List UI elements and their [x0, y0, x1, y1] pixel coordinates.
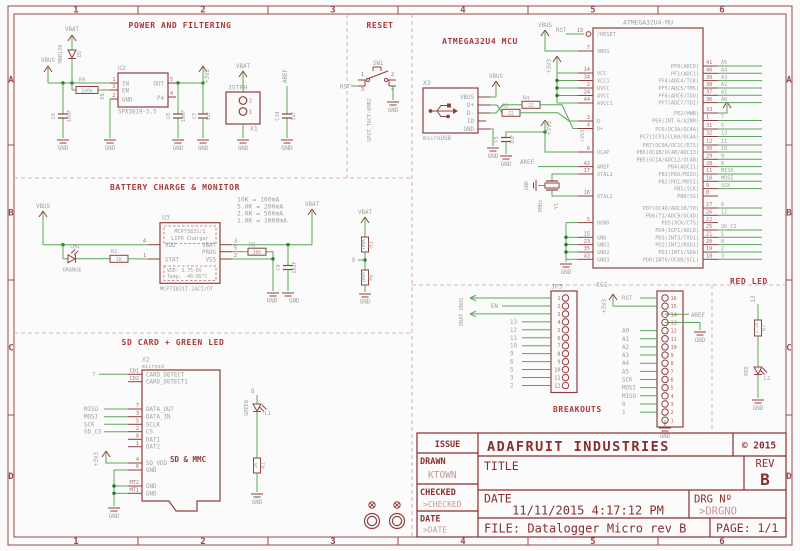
net-label: MISO: [84, 407, 98, 413]
mcu-pin-number: 4: [587, 123, 590, 129]
cap-name: C14: [275, 111, 281, 120]
resistor-value: 100k: [81, 88, 93, 94]
net-label: A1: [622, 337, 629, 343]
gnd-label: GND: [109, 514, 120, 520]
mcu-pin-name: PD0(INT0/OC0B/SCL): [643, 257, 699, 263]
sd-pin-name: DATA_OUT: [146, 407, 174, 413]
header-pin-number: 7: [671, 369, 674, 375]
led-icon: [754, 367, 767, 375]
frame-row-label: D: [8, 472, 14, 482]
frame-col-label: 3: [330, 537, 335, 547]
net-label: A0: [622, 329, 629, 335]
connector-pad-icon: [239, 108, 247, 116]
mounting-hole-icon: [390, 514, 405, 529]
header-pin-number: 7: [557, 344, 560, 350]
net-label: A2: [721, 82, 727, 88]
header-pad-icon: [662, 393, 668, 399]
net-label: MOSI: [721, 176, 734, 182]
header-pad-icon: [662, 295, 668, 301]
header-pad-icon: [562, 319, 568, 325]
mcu-pin-name: D-: [597, 119, 603, 125]
mcu-pin-name: PC7(ICP3/CLK0/OC4A): [640, 135, 699, 141]
net-label: 0: [622, 402, 626, 408]
header-pin-number: 2: [671, 410, 674, 416]
net-label: 11: [721, 139, 727, 145]
net-label-en: EN: [100, 93, 106, 99]
mcu-pin-name: PF5(ADC5/TMS): [658, 86, 699, 92]
diode-name: D5: [77, 51, 83, 57]
net-label: 8: [251, 389, 255, 395]
header-pin-number: 12: [554, 383, 560, 389]
net-label: 10: [510, 344, 517, 350]
mcu-pin-number: 19: [706, 246, 712, 252]
resistor-value: 2.2K: [754, 322, 760, 334]
net-label: A1: [721, 90, 727, 96]
mcu-pin-name: PD1(INT1/SDA): [658, 250, 699, 256]
led-name: L1: [265, 411, 271, 417]
mcu-pin-name: XTAL1: [597, 172, 613, 178]
net-label-vbat: VBAT: [65, 27, 79, 33]
mcu-pin-number: 20: [706, 239, 712, 245]
resistor-value: 100K: [361, 272, 367, 284]
header-pin-number: 12: [671, 329, 677, 335]
header-pin-number: 5: [557, 328, 560, 334]
frame-col-label: 1: [73, 6, 78, 16]
diode-value: MBR120: [58, 45, 64, 64]
mcu-pin-name: PF0(ADC0): [671, 64, 699, 70]
date-value: >DATE: [423, 526, 447, 535]
led-icon: [68, 250, 78, 263]
header-pad-icon: [662, 368, 668, 374]
sd-pin-name: DATA_IN: [146, 415, 171, 421]
cap-name: C5: [494, 136, 500, 142]
mcu-pin-name: XTAL2: [597, 194, 613, 200]
section-title: POWER AND FILTERING: [129, 21, 232, 30]
gnd-icon: [387, 102, 399, 105]
mcu-pin-name: VCC1: [597, 79, 610, 85]
mcu-pin-number: 5: [587, 217, 590, 223]
mcu-pin-name: AVCC: [597, 94, 610, 100]
mounting-hole-icon: [365, 514, 380, 529]
mcu-pin-number: 21: [706, 232, 712, 238]
frame-row-label: A: [786, 76, 792, 86]
sd-pin-name: GND: [146, 468, 157, 474]
frame-col-label: 2: [200, 6, 205, 16]
mcu-pin-number: 24: [584, 90, 590, 96]
header-name: IC1: [596, 281, 608, 289]
mcu-pin-name: PB2(PDI/MOSI): [658, 179, 699, 185]
cap-name: C9: [276, 264, 282, 270]
net-label: 8: [721, 161, 724, 167]
pin-name: STAT: [165, 257, 179, 263]
mcu-pin-name: PB7(OC0A/OC1C/RTS): [643, 143, 699, 149]
mcu-pin-number: 17: [584, 168, 590, 174]
mcu-pin-name: PF4(ADC4/TCK): [658, 79, 699, 85]
mcu-pin-number: 34: [584, 75, 590, 81]
switch-value: SPST_TACT-KMR2: [367, 98, 373, 142]
net-label: MOSI: [84, 415, 98, 421]
crystal-icon: [545, 181, 559, 190]
sd-pin-name: SD_VDD: [146, 461, 167, 467]
gnd-label: GND: [524, 181, 530, 190]
pin-name: VBAT: [202, 243, 216, 249]
frame-col-label: 2: [200, 537, 205, 547]
header-pad-icon: [662, 336, 668, 342]
mcu-pin-name: GND: [597, 235, 606, 241]
net-label-vbat: VBAT: [305, 202, 319, 208]
mcu-pin-name: PF7(ADC7/TDI): [658, 101, 699, 107]
sd-pin-number: CD2: [130, 376, 139, 382]
resistor-value: 1K: [253, 463, 259, 469]
ic-label: LIPO Charger: [171, 236, 208, 242]
diode-icon: [68, 50, 76, 59]
mcu-pin-name: PD7(OC4D/ADC10/T0): [643, 206, 699, 212]
mcu-pin-number: 42: [584, 161, 590, 167]
header-pad-icon: [562, 335, 568, 341]
net-label: 9: [510, 352, 514, 358]
header-pin-number: 16: [671, 296, 677, 302]
sd-pin-number: 6: [136, 464, 139, 470]
gnd-label: GND: [561, 270, 572, 276]
net-label: 12: [721, 210, 727, 216]
mcu-pin-number: 33: [706, 107, 712, 113]
sd-pin-number: 3: [136, 411, 139, 417]
net-label-3v3: +3V3: [580, 130, 586, 143]
frame-col-label: 4: [460, 6, 466, 16]
section-title: BREAKOUTS: [553, 405, 602, 414]
cap-value: 10uF: [67, 110, 73, 123]
pin-name: VBUS: [460, 95, 474, 101]
gnd-icon: [108, 508, 120, 511]
checked-value: >CHECKED: [423, 500, 462, 509]
gnd-label: GND: [267, 299, 278, 305]
header-pin-number: 8: [671, 361, 674, 367]
net-label-aref: AREF: [691, 313, 705, 319]
net-label: 9: [352, 258, 356, 264]
rev-label: REV: [756, 458, 776, 470]
sd-pin-name: CARD_DETECT1: [146, 380, 188, 386]
mcu-pin-number: 14: [584, 67, 590, 73]
header-pad-icon: [562, 382, 568, 388]
date2-value: 11/11/2015 4:17:12 PM: [512, 504, 664, 518]
cap-value: 1uF: [291, 111, 297, 120]
net-label: A3: [721, 75, 727, 81]
pin-number: 3: [234, 239, 237, 245]
header-pin-number: 6: [557, 336, 560, 342]
net-label: MISO: [721, 168, 734, 174]
header-pin-number: 13: [671, 320, 677, 326]
connector-name: X2: [142, 356, 150, 364]
mcu-pin-number: 29: [706, 154, 712, 160]
gnd-icon: [281, 140, 293, 143]
header-pad-icon: [562, 366, 568, 372]
drg-label: DRG Nº: [694, 494, 732, 506]
header-pad-icon: [662, 384, 668, 390]
net-label: 0: [721, 239, 724, 245]
gnd-icon: [172, 140, 184, 143]
pin-number: 3: [112, 84, 115, 90]
switch-name: SW1: [373, 61, 384, 67]
mcu-pin-number: 16: [584, 190, 590, 196]
frame-col-label: 5: [590, 537, 595, 547]
frame-col-label: 5: [590, 6, 595, 16]
header-pin-number: 2: [557, 304, 560, 310]
net-label: 9: [721, 154, 724, 160]
net-label-aref: AREF: [283, 69, 289, 83]
pin-name: VSS: [206, 258, 217, 264]
gnd-label: GND: [58, 146, 69, 152]
mcu-pin-number: 15: [584, 232, 590, 238]
mcu-pin-name: AVCC1: [597, 101, 613, 107]
copyright: © 2015: [742, 441, 777, 452]
gnd-label: GND: [695, 338, 706, 344]
net-label: 13: [721, 131, 727, 137]
header-pin-number: 1: [671, 418, 674, 424]
net-label: VBAT: [459, 314, 465, 327]
net-label: A4: [721, 68, 727, 74]
pin-name: OUT: [154, 81, 165, 87]
net-label: 13: [751, 295, 757, 302]
net-label-vbat: VBAT: [236, 64, 250, 70]
mcu-pin-number: 3: [587, 115, 590, 121]
net-label: 7: [721, 115, 724, 121]
pin-name: ID: [467, 119, 474, 125]
header-pad-icon: [562, 303, 568, 309]
mcu-pin-number: 36: [706, 97, 712, 103]
mcu-pin-name: PB1(SCK): [674, 187, 699, 193]
net-label: SCK: [622, 378, 633, 384]
sd-pin-number: CD1: [130, 369, 139, 375]
gnd-label: GND: [289, 299, 300, 305]
net-label: 6: [721, 202, 724, 208]
mcu-pin-name: PF6(ADC6/TDO): [658, 93, 699, 99]
led-color-label: RED: [744, 366, 750, 375]
gnd-icon: [500, 156, 512, 159]
header-name: JP3: [551, 283, 563, 291]
sd-pin-name: SCLK: [146, 422, 160, 428]
resistor-value: 1K: [116, 257, 122, 263]
section-title: SD CARD + GREEN LED: [122, 338, 225, 347]
fiducial-icon: [369, 502, 375, 508]
mcu-pin-name: PB3(PDO/MISO): [658, 172, 699, 178]
pin-name: PROG: [202, 250, 216, 256]
header-pin-number: 14: [671, 312, 677, 318]
net-label: SCK: [721, 183, 731, 189]
sd-pin-name: CS: [146, 430, 153, 436]
section-title: ATMEGA32U4 MCU: [442, 37, 518, 46]
net-label: SCK: [84, 422, 95, 428]
mcu-pin-name: UCAP: [597, 150, 610, 156]
net-label-vbus: VBUS: [538, 23, 552, 29]
frame-row-label: B: [8, 209, 14, 219]
section-reset: RESET SW1 1 2 3 4 RST GND SPST_TACT-KMR2: [340, 21, 399, 142]
header-pad-icon: [662, 376, 668, 382]
header-pin-number: 4: [557, 320, 560, 326]
gnd-icon: [752, 400, 764, 403]
net-label: 10: [721, 146, 727, 152]
mcu-pin-name: UVCC: [597, 86, 610, 92]
mcu-pin-number: 28: [706, 161, 712, 167]
pin-name: GND: [464, 127, 475, 133]
net-label-3v3: +3V3: [205, 69, 211, 83]
gnd-label: GND: [488, 154, 499, 160]
net-label-3v3: +3V3: [602, 299, 608, 313]
net-label: A5: [622, 369, 629, 375]
header-pad-icon: [662, 303, 668, 309]
gnd-icon: [57, 140, 69, 143]
frame-col-label: 6: [719, 6, 724, 16]
component-name: U2: [118, 64, 126, 72]
header-pin-number: 3: [557, 312, 560, 318]
net-label: A2: [622, 345, 629, 351]
sd-pin-name: DAT1: [146, 437, 160, 443]
mcu-pin-number: 39: [706, 75, 712, 81]
header-pin-number: 4: [671, 394, 674, 400]
cap-name: C8: [166, 113, 172, 119]
header-pin-number: 10: [671, 345, 677, 351]
header-pin-number: 9: [557, 360, 560, 366]
connector-value: microsd: [142, 364, 164, 370]
header-pad-icon: [662, 344, 668, 350]
cap-value: 10uF: [292, 261, 298, 274]
gnd-icon: [237, 140, 249, 143]
mcu-pin-name: D+: [597, 127, 603, 133]
cap-value: 1uF: [206, 111, 212, 120]
net-label: 12: [510, 328, 517, 334]
mcu-pin-name: /RESET: [597, 32, 616, 38]
frame-col-label: 3: [330, 6, 335, 16]
header-pin-number: 9: [671, 353, 674, 359]
mcu-pin-number: 26: [706, 210, 712, 216]
header-pad-icon: [562, 295, 568, 301]
pin-number: 5: [170, 77, 173, 83]
header-pin-number: 10: [554, 368, 560, 374]
net-label: 5: [510, 368, 514, 374]
resistor-value: 100K: [361, 239, 367, 251]
header-pad-icon: [662, 352, 668, 358]
header-pin-number: 3: [671, 402, 674, 408]
header-pad-icon: [662, 401, 668, 407]
gnd-icon: [104, 140, 116, 143]
frame-row-label: C: [786, 344, 791, 354]
gnd-label: GND: [501, 162, 512, 168]
net-label: RST: [622, 296, 633, 302]
cap-value: 10uF: [181, 110, 187, 123]
pin-name: VDD: [165, 243, 176, 249]
mcu-pin-number: 41: [706, 60, 712, 66]
net-label-rst: RST: [340, 85, 351, 91]
component-value: SPX3819-3.3: [118, 110, 157, 116]
sd-pin-number: MT2: [130, 480, 139, 486]
header-pad-icon: [662, 327, 668, 333]
mcu-pin-name: AREF: [597, 165, 610, 171]
connector-name: X1: [250, 125, 258, 133]
mcu-pin-number: 25: [706, 224, 712, 230]
gnd-icon: [560, 264, 572, 267]
mcu-pin-name: GND3: [597, 257, 610, 263]
net-label: SD_CS: [721, 224, 737, 230]
ic-spec: VDD: 3.75-6V: [167, 268, 202, 274]
checked-label: CHECKED: [420, 488, 456, 498]
ic-label: MCP73831/2: [174, 229, 205, 235]
gnd-label: GND: [173, 146, 184, 152]
gnd-label: GND: [281, 144, 293, 152]
header-pin-number: 11: [554, 376, 560, 382]
mcu-pin-name: GND1: [597, 243, 610, 249]
resistor-name: R9: [79, 78, 85, 84]
sd-pin-number: 8: [136, 434, 139, 440]
mcu-pin-number: 37: [706, 90, 712, 96]
pin-number: 2: [391, 72, 394, 78]
component-value: MCP73831T-2ACI/OT: [160, 287, 213, 293]
header-pin-number: 8: [557, 352, 560, 358]
resistor-name: R6: [369, 274, 375, 280]
mcu-pin-number: 18: [706, 254, 712, 260]
cap-value: 1uF: [510, 135, 516, 144]
gnd-icon: [534, 180, 537, 191]
net-label: 6: [510, 360, 514, 366]
net-label: A3: [622, 353, 629, 359]
mcu-pin-number: 30: [706, 146, 712, 152]
gnd-icon: [359, 294, 371, 297]
resistor-name: R7: [762, 325, 768, 331]
gnd-label: GND: [360, 300, 371, 306]
connector-value: JSTPH: [228, 84, 247, 92]
drg-value: >DRGNO: [699, 506, 737, 518]
net-label-vbus: VBUS: [489, 74, 503, 80]
gnd-label: GND: [753, 406, 764, 412]
ic-name: ATMEGA32U4-MU: [623, 19, 673, 27]
sd-pin-number: 5: [136, 419, 139, 425]
gnd-label: GND: [238, 146, 249, 152]
mcu-pin-number: 13: [577, 28, 583, 34]
crystal-value: 8MHz: [538, 200, 544, 213]
gnd-label: GND: [105, 146, 116, 152]
mcu-pin-name: PE6(INT.6/AIN0): [652, 119, 699, 125]
usb-icon: [429, 104, 458, 119]
gnd-label: GND: [252, 500, 263, 506]
pin-name: EN: [122, 89, 129, 95]
net-label: MOSI: [622, 386, 636, 392]
mcu-pin-number: 11: [706, 168, 712, 174]
net-label-rst: RST: [556, 28, 567, 34]
gnd-icon: [267, 293, 279, 296]
frame-col-label: 4: [460, 537, 466, 547]
pin-name: IN: [122, 81, 129, 87]
mcu-pin-number: 31: [706, 123, 712, 129]
sd-label: SD & MMC: [170, 455, 206, 464]
net-label: 7: [92, 373, 96, 379]
gnd-icon: [487, 148, 499, 151]
section-battery: BATTERY CHARGE & MONITOR VBUS CHG ORANGE…: [36, 183, 374, 306]
net-label-vbat: VBAT: [358, 210, 372, 216]
schematic-canvas: 1 2 3 4 5 6 1 2 3 4 5 6 A B C D A B C D …: [0, 0, 800, 551]
resistor-value: 22: [528, 103, 534, 109]
fiducial-icon: [394, 502, 400, 508]
net-label: EN: [491, 304, 498, 310]
mcu-pin-number: 2: [587, 82, 590, 88]
mcu-pin-number: 7: [587, 45, 590, 51]
net-label: 3: [510, 376, 514, 382]
company-name: ADAFRUIT INDUSTRIES: [487, 439, 670, 455]
section-redled: RED LED 13 2.2K R7 RED L2 GND: [730, 277, 770, 412]
section-title: RESET: [366, 21, 393, 30]
date2-label: DATE: [484, 492, 512, 506]
section-title: BATTERY CHARGE & MONITOR: [110, 183, 240, 192]
frame-row-label: D: [786, 472, 792, 482]
resistor-name: R4: [523, 96, 529, 102]
gnd-label: GND: [388, 108, 399, 114]
